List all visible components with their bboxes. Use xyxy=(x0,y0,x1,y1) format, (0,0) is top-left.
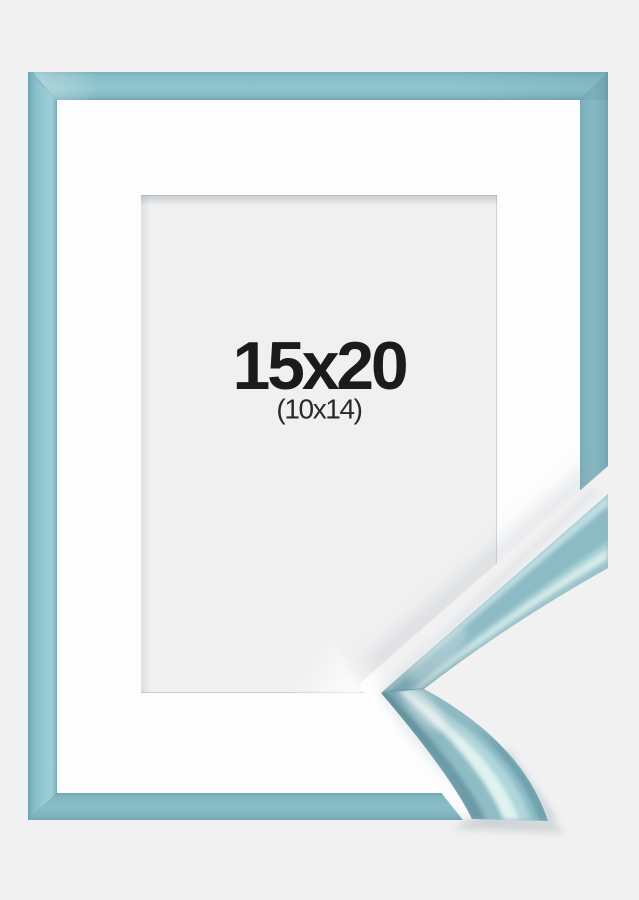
svg-text:(10x14): (10x14) xyxy=(276,394,361,425)
